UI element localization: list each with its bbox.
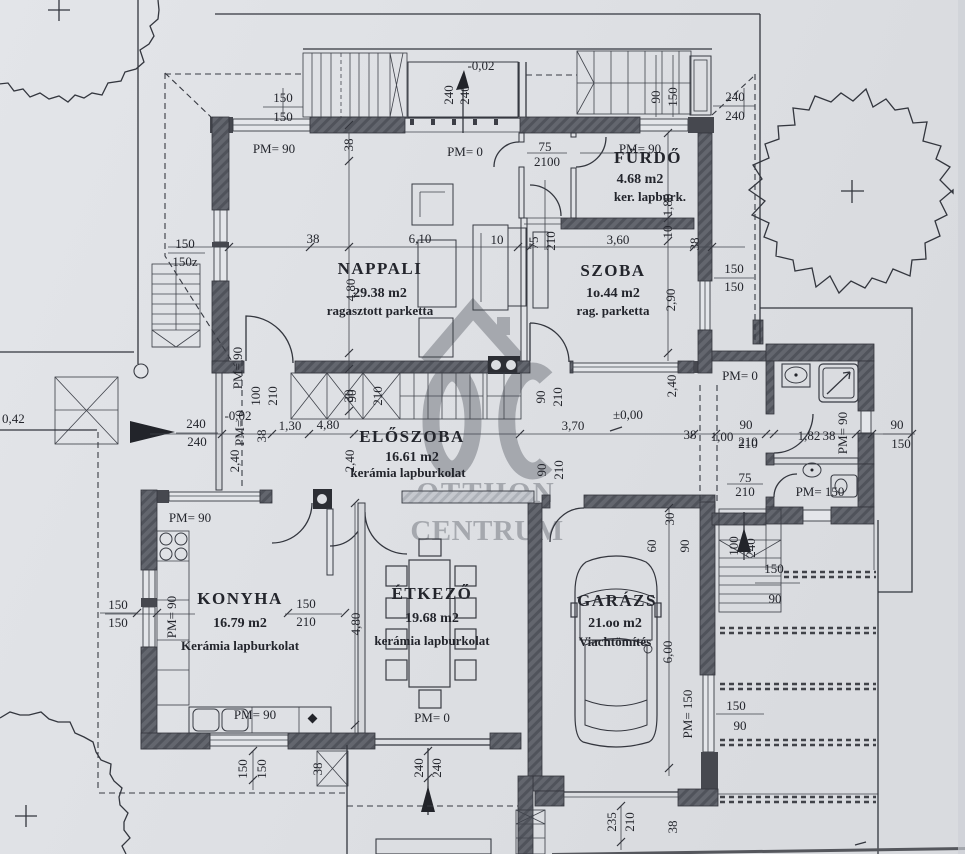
svg-text:210: 210 [543, 231, 558, 251]
svg-text:60: 60 [644, 540, 659, 553]
svg-text:150: 150 [296, 596, 316, 611]
svg-text:1,82: 1,82 [798, 428, 821, 443]
svg-text:kerámia lapburkolat: kerámia lapburkolat [374, 633, 490, 648]
svg-text:19.68 m2: 19.68 m2 [405, 611, 459, 626]
svg-text:PM= 150: PM= 150 [680, 690, 695, 739]
svg-text:150: 150 [764, 561, 784, 576]
svg-text:KONYHA: KONYHA [197, 589, 283, 608]
svg-text:PM= 90: PM= 90 [230, 347, 245, 389]
svg-text:2,40: 2,40 [227, 450, 242, 473]
svg-text:150: 150 [175, 236, 195, 251]
svg-text:38: 38 [665, 821, 680, 834]
svg-text:38: 38 [823, 428, 836, 443]
svg-text:150: 150 [724, 261, 744, 276]
svg-text:Viachtömítés: Viachtömítés [579, 634, 651, 649]
svg-text:38: 38 [687, 238, 702, 251]
svg-text:150: 150 [724, 279, 744, 294]
svg-text:90: 90 [740, 417, 753, 432]
svg-text:16.61 m2: 16.61 m2 [385, 450, 439, 465]
svg-text:PM= 90: PM= 90 [619, 141, 661, 156]
svg-text:240: 240 [411, 758, 426, 778]
svg-text:150: 150 [108, 597, 128, 612]
svg-text:2,40: 2,40 [664, 375, 679, 398]
svg-text:210: 210 [622, 812, 637, 832]
svg-text:90: 90 [344, 390, 359, 403]
svg-text:10: 10 [660, 226, 675, 239]
svg-text:150: 150 [665, 87, 680, 107]
svg-text:90: 90 [534, 464, 549, 477]
svg-text:1,30: 1,30 [279, 418, 302, 433]
svg-text:16.79 m2: 16.79 m2 [213, 616, 267, 631]
svg-text:PM= 90: PM= 90 [234, 707, 276, 722]
svg-text:38: 38 [254, 430, 269, 443]
svg-text:ragasztott parketta: ragasztott parketta [327, 303, 434, 318]
svg-text:ker. lapburk.: ker. lapburk. [614, 189, 686, 204]
svg-text:rag. parketta: rag. parketta [577, 303, 650, 318]
svg-text:SZOBA: SZOBA [580, 261, 645, 280]
svg-text:235: 235 [604, 812, 619, 832]
svg-text:210: 210 [265, 386, 280, 406]
svg-text:-0,02: -0,02 [224, 408, 251, 423]
svg-text:ÉTKEZŐ: ÉTKEZŐ [392, 584, 473, 603]
svg-text:PM= 150: PM= 150 [796, 484, 845, 499]
svg-text:150z: 150z [172, 254, 198, 269]
svg-text:4,80: 4,80 [343, 279, 358, 302]
svg-text:90: 90 [533, 391, 548, 404]
svg-text:±0,00: ±0,00 [613, 407, 643, 422]
svg-text:240: 240 [457, 85, 472, 105]
svg-text:38: 38 [310, 763, 325, 776]
svg-text:90: 90 [734, 718, 747, 733]
svg-text:90: 90 [891, 417, 904, 432]
svg-text:NAPPALI: NAPPALI [338, 259, 423, 278]
svg-text:90: 90 [769, 591, 782, 606]
svg-text:210: 210 [735, 484, 755, 499]
svg-text:150: 150 [108, 615, 128, 630]
svg-text:100: 100 [248, 386, 263, 406]
svg-text:4,80: 4,80 [317, 417, 340, 432]
svg-text:210: 210 [738, 434, 758, 449]
svg-text:150: 150 [891, 436, 911, 451]
svg-text:0,42: 0,42 [2, 411, 25, 426]
svg-text:PM= 0: PM= 0 [722, 368, 758, 383]
svg-text:4,80: 4,80 [348, 613, 363, 636]
svg-text:100: 100 [726, 536, 741, 556]
svg-text:240: 240 [441, 85, 456, 105]
svg-text:21.oo m2: 21.oo m2 [588, 616, 642, 631]
svg-text:3,60: 3,60 [607, 232, 630, 247]
svg-text:GARÁZS: GARÁZS [577, 591, 657, 610]
svg-text:29.38 m2: 29.38 m2 [353, 286, 407, 301]
svg-text:240: 240 [725, 89, 745, 104]
svg-text:38: 38 [684, 427, 697, 442]
svg-text:240: 240 [186, 416, 206, 431]
svg-text:PM= 0: PM= 0 [414, 710, 450, 725]
svg-text:PM= 90: PM= 90 [164, 596, 179, 638]
svg-text:150: 150 [235, 759, 250, 779]
svg-text:210: 210 [551, 460, 566, 480]
svg-text:6,10: 6,10 [409, 231, 432, 246]
svg-text:10: 10 [491, 232, 504, 247]
svg-text:90: 90 [648, 91, 663, 104]
svg-text:PM= 90: PM= 90 [169, 510, 211, 525]
svg-text:240: 240 [187, 434, 207, 449]
svg-text:2,90: 2,90 [663, 289, 678, 312]
svg-text:2100: 2100 [534, 154, 560, 169]
svg-text:75: 75 [739, 470, 752, 485]
svg-text:3,70: 3,70 [562, 418, 585, 433]
svg-text:75: 75 [539, 139, 552, 154]
svg-text:kerámia lapburkolat: kerámia lapburkolat [350, 465, 466, 480]
svg-text:1,80: 1,80 [660, 194, 675, 217]
svg-text:PM= 90: PM= 90 [253, 141, 295, 156]
svg-text:1o.44 m2: 1o.44 m2 [586, 286, 640, 301]
svg-text:PM= 0: PM= 0 [447, 144, 483, 159]
svg-text:ELŐSZOBA: ELŐSZOBA [359, 427, 465, 446]
svg-text:30: 30 [662, 513, 677, 526]
svg-text:210: 210 [296, 614, 316, 629]
svg-text:-0,02: -0,02 [467, 58, 494, 73]
svg-text:150: 150 [726, 698, 746, 713]
svg-text:240: 240 [743, 538, 758, 558]
svg-text:240: 240 [725, 108, 745, 123]
svg-text:4.68 m2: 4.68 m2 [617, 172, 664, 187]
svg-text:6,00: 6,00 [660, 641, 675, 664]
svg-text:Kerámia lapburkolat: Kerámia lapburkolat [181, 638, 300, 653]
svg-text:210: 210 [370, 386, 385, 406]
svg-text:2,40: 2,40 [342, 450, 357, 473]
svg-text:38: 38 [341, 139, 356, 152]
svg-text:210: 210 [550, 387, 565, 407]
svg-text:PM= 90: PM= 90 [835, 412, 850, 454]
svg-text:150: 150 [254, 759, 269, 779]
svg-text:90: 90 [677, 540, 692, 553]
